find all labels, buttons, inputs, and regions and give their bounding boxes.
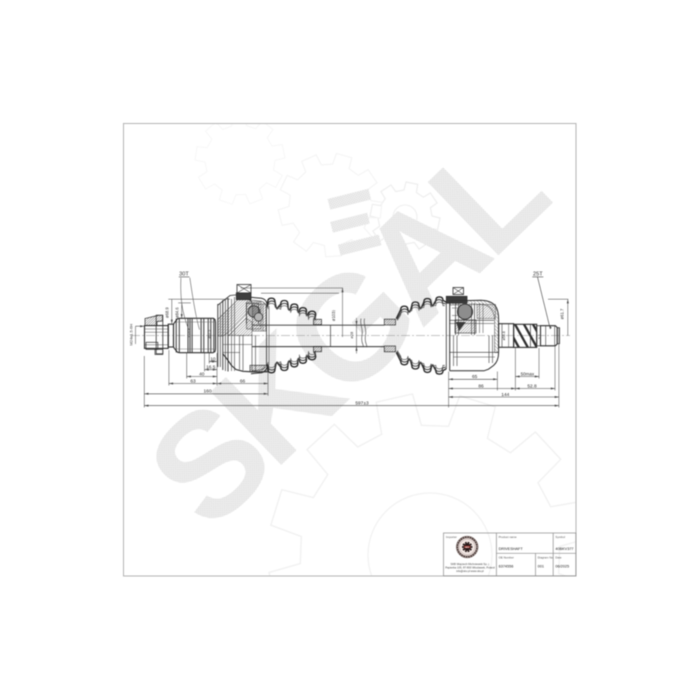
svg-text:ø28: ø28 (349, 331, 354, 339)
svg-text:SKB Wojciech Michniewski Sp. j: SKB Wojciech Michniewski Sp. j. (450, 562, 489, 566)
svg-text:ø68.9: ø68.9 (164, 307, 169, 318)
svg-text:10: 10 (210, 356, 216, 362)
svg-text:ø103⟩: ø103⟩ (331, 310, 336, 322)
svg-text:52.8: 52.8 (527, 383, 537, 389)
svg-text:66: 66 (240, 378, 246, 384)
svg-text:ø84.6: ø84.6 (174, 307, 179, 318)
svg-text:SKV: SKV (465, 547, 470, 549)
svg-text:5-1: 5-1 (538, 334, 542, 339)
svg-text:M24x1.5-6H: M24x1.5-6H (129, 324, 134, 346)
svg-text:6374556: 6374556 (499, 565, 514, 569)
svg-text:ø58.8: ø58.8 (502, 331, 506, 340)
svg-text:16.5: 16.5 (206, 365, 216, 371)
svg-text:Date: Date (555, 555, 561, 559)
svg-text:06/2025: 06/2025 (555, 565, 569, 569)
svg-text:info@skv.pl www.skv.pl: info@skv.pl www.skv.pl (456, 569, 484, 573)
svg-text:Importer: Importer (446, 535, 457, 539)
svg-text:160: 160 (203, 389, 211, 395)
svg-text:86: 86 (478, 383, 484, 389)
svg-text:Symbol: Symbol (555, 535, 565, 539)
svg-text:144: 144 (501, 392, 509, 398)
svg-text:63: 63 (190, 378, 196, 384)
svg-text:50max: 50max (521, 371, 535, 376)
svg-text:40BKV377: 40BKV377 (555, 547, 573, 551)
svg-text:Diagram No: Diagram No (538, 555, 554, 559)
svg-text:DRIVESHAFT: DRIVESHAFT (499, 547, 524, 551)
svg-text:Product name: Product name (499, 535, 517, 539)
svg-text:OE Number: OE Number (499, 555, 514, 559)
svg-text:ø57.5: ø57.5 (208, 330, 212, 339)
svg-text:65: 65 (472, 374, 478, 380)
svg-text:C-3: C-3 (187, 331, 191, 337)
svg-text:Papiezka 105, 87-800 Wloclawek: Papiezka 105, 87-800 Wloclawek, Poland (445, 566, 495, 570)
svg-text:40: 40 (199, 371, 205, 377)
svg-text:597±3: 597±3 (355, 400, 369, 406)
svg-text:001: 001 (538, 565, 544, 569)
svg-text:ø61.7: ø61.7 (559, 308, 564, 319)
